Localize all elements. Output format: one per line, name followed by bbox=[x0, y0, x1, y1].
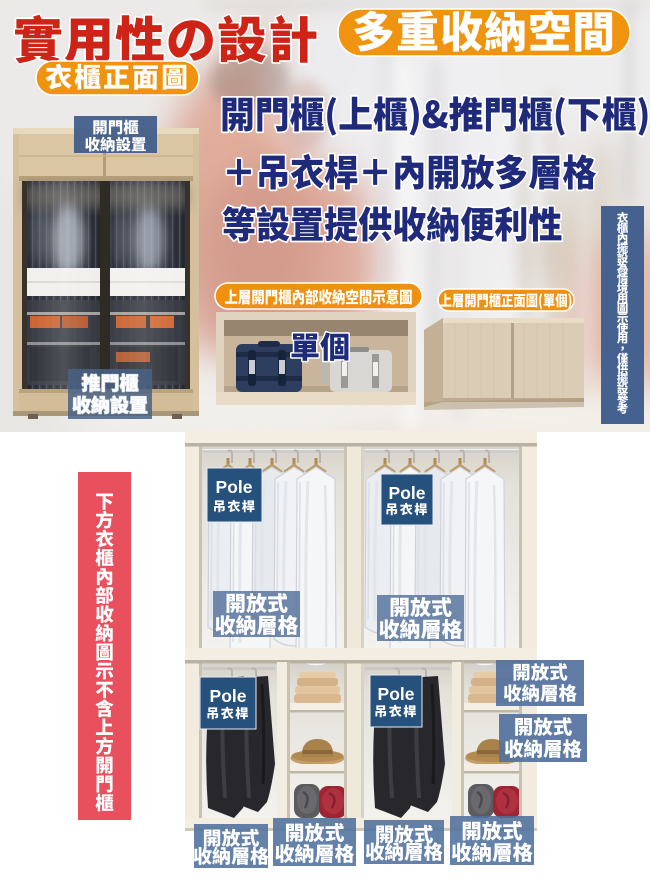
svg-text:Pole: Pole bbox=[210, 686, 247, 706]
svg-text:Pole: Pole bbox=[378, 684, 415, 704]
svg-text:Pole: Pole bbox=[216, 477, 253, 497]
svg-text:Pole: Pole bbox=[389, 483, 426, 503]
